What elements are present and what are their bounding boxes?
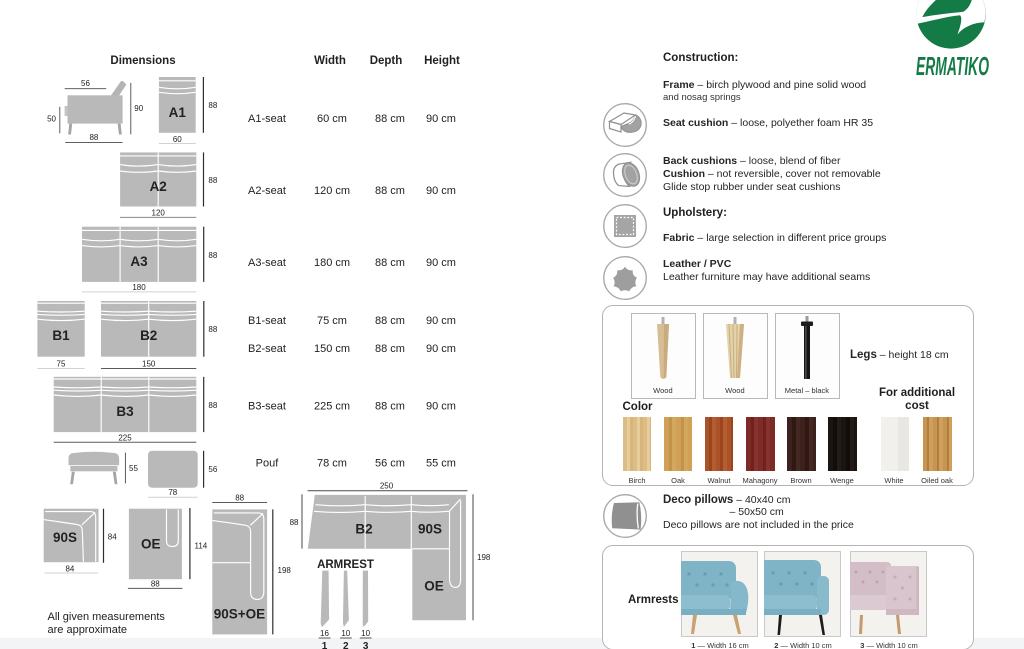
- svg-text:88: 88: [208, 251, 217, 260]
- svg-text:Height: Height: [424, 55, 460, 67]
- svg-text:16: 16: [320, 629, 329, 638]
- svg-text:225 cm: 225 cm: [314, 401, 350, 413]
- svg-text:78 cm: 78 cm: [317, 458, 347, 470]
- svg-text:114: 114: [195, 542, 208, 551]
- svg-text:B2-seat: B2-seat: [248, 343, 286, 355]
- svg-text:A1: A1: [169, 105, 187, 120]
- svg-text:88 cm: 88 cm: [375, 401, 405, 413]
- svg-text:OE: OE: [424, 579, 444, 594]
- svg-text:90: 90: [134, 104, 143, 113]
- svg-text:88 cm: 88 cm: [375, 343, 405, 355]
- svg-text:A3-seat: A3-seat: [248, 257, 286, 269]
- svg-text:ARMREST: ARMREST: [317, 559, 374, 571]
- svg-text:Depth: Depth: [370, 55, 403, 67]
- svg-text:10: 10: [341, 629, 350, 638]
- svg-text:75: 75: [57, 360, 66, 369]
- svg-text:56: 56: [208, 465, 217, 474]
- svg-text:90S: 90S: [418, 522, 442, 537]
- svg-text:88: 88: [208, 176, 217, 185]
- svg-text:88 cm: 88 cm: [375, 257, 405, 269]
- svg-text:60: 60: [173, 135, 182, 144]
- svg-text:B2: B2: [140, 328, 157, 343]
- svg-text:88: 88: [208, 101, 217, 110]
- svg-text:56 cm: 56 cm: [375, 458, 405, 470]
- svg-text:75 cm: 75 cm: [317, 315, 347, 327]
- svg-text:198: 198: [477, 553, 491, 562]
- svg-text:B1-seat: B1-seat: [248, 315, 286, 327]
- svg-text:198: 198: [278, 566, 292, 575]
- svg-text:180: 180: [132, 283, 146, 292]
- svg-text:180 cm: 180 cm: [314, 257, 350, 269]
- svg-text:88: 88: [208, 401, 217, 410]
- svg-text:88: 88: [89, 133, 98, 142]
- svg-text:A1-seat: A1-seat: [248, 113, 286, 125]
- svg-text:10: 10: [361, 629, 370, 638]
- svg-text:84: 84: [65, 565, 74, 574]
- svg-text:88 cm: 88 cm: [375, 185, 405, 197]
- svg-text:90 cm: 90 cm: [426, 401, 456, 413]
- svg-text:OE: OE: [141, 537, 161, 552]
- svg-text:120 cm: 120 cm: [314, 185, 350, 197]
- svg-text:90 cm: 90 cm: [426, 343, 456, 355]
- svg-text:225: 225: [118, 434, 132, 443]
- svg-text:B2: B2: [355, 522, 372, 537]
- svg-text:A2: A2: [150, 179, 167, 194]
- svg-text:78: 78: [168, 488, 177, 497]
- svg-text:A3: A3: [130, 254, 148, 269]
- svg-text:Pouf: Pouf: [256, 458, 280, 470]
- svg-text:60 cm: 60 cm: [317, 113, 347, 125]
- svg-text:84: 84: [108, 533, 117, 542]
- svg-text:88: 88: [290, 518, 299, 527]
- svg-text:are approximate: are approximate: [48, 624, 128, 636]
- svg-text:All given measurements: All given measurements: [48, 611, 166, 623]
- svg-text:A2-seat: A2-seat: [248, 185, 286, 197]
- svg-text:Width: Width: [314, 55, 346, 67]
- svg-text:250: 250: [380, 481, 394, 490]
- svg-text:88: 88: [151, 580, 160, 589]
- svg-text:2: 2: [343, 641, 349, 649]
- svg-text:ERMATIKO: ERMATIKO: [916, 52, 989, 80]
- svg-text:90S+OE: 90S+OE: [214, 607, 265, 622]
- svg-text:120: 120: [152, 209, 166, 218]
- svg-text:88 cm: 88 cm: [375, 315, 405, 327]
- svg-text:88: 88: [208, 325, 217, 334]
- svg-text:B1: B1: [52, 328, 70, 343]
- svg-text:90 cm: 90 cm: [426, 315, 456, 327]
- svg-text:B3: B3: [116, 404, 134, 419]
- svg-text:56: 56: [81, 79, 90, 88]
- svg-text:Dimensions: Dimensions: [110, 55, 175, 67]
- svg-text:150 cm: 150 cm: [314, 343, 350, 355]
- svg-text:50: 50: [47, 115, 56, 124]
- svg-text:1: 1: [322, 641, 328, 649]
- svg-text:90 cm: 90 cm: [426, 185, 456, 197]
- svg-text:88: 88: [235, 493, 244, 502]
- svg-text:55: 55: [129, 464, 138, 473]
- svg-text:3: 3: [363, 641, 369, 649]
- svg-text:90 cm: 90 cm: [426, 257, 456, 269]
- svg-text:B3-seat: B3-seat: [248, 401, 286, 413]
- svg-text:55 cm: 55 cm: [426, 458, 456, 470]
- svg-text:150: 150: [142, 360, 156, 369]
- svg-text:90S: 90S: [53, 530, 77, 545]
- svg-text:88 cm: 88 cm: [375, 113, 405, 125]
- svg-text:90 cm: 90 cm: [426, 113, 456, 125]
